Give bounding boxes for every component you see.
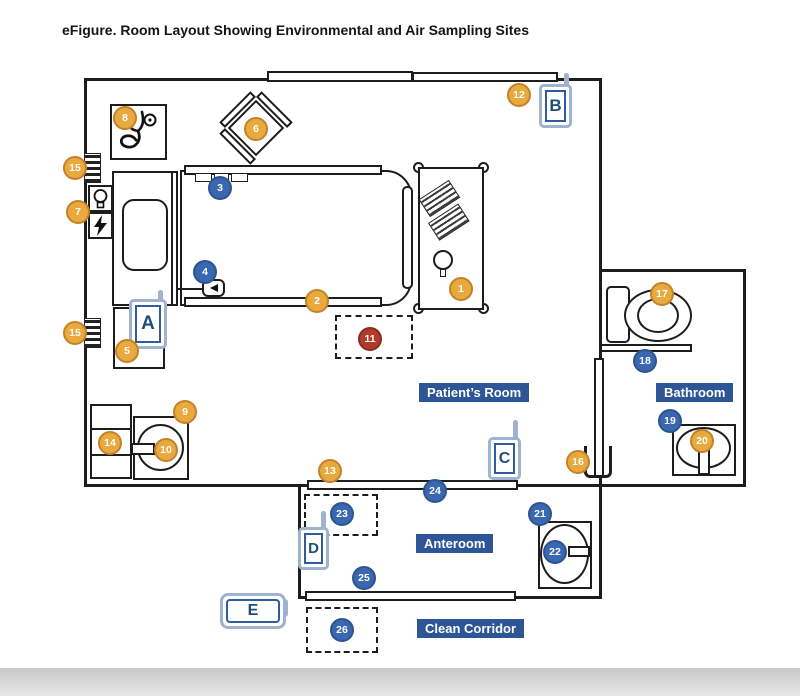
lightning-icon <box>90 214 111 237</box>
door-label-e: E <box>220 593 286 629</box>
door-c-letter: C <box>494 443 515 474</box>
sampling-site-marker-23: 23 <box>330 502 354 526</box>
door-anteroom-to-corridor <box>305 591 516 601</box>
label-clean-corridor: Clean Corridor <box>417 619 524 638</box>
door-a-letter: A <box>135 305 161 343</box>
sampling-site-marker-4: 4 <box>193 260 217 284</box>
wall-bathroom-right <box>743 269 746 487</box>
label-bathroom: Bathroom <box>656 383 733 402</box>
door-label-b: B <box>539 84 572 128</box>
sampling-site-marker-13: 13 <box>318 459 342 483</box>
label-patients-room: Patient’s Room <box>419 383 529 402</box>
door-d-letter: D <box>304 533 323 564</box>
door-b-letter: B <box>545 90 566 122</box>
sampling-site-marker-20: 20 <box>690 429 714 453</box>
sampling-site-marker-10: 10 <box>154 438 178 462</box>
mirror-icon-head <box>433 250 453 270</box>
sampling-site-marker-12: 12 <box>507 83 531 107</box>
room-sink-faucet <box>131 443 155 455</box>
sampling-site-marker-15: 15 <box>63 321 87 345</box>
sampling-site-marker-22: 22 <box>543 540 567 564</box>
efigure-room-layout: eFigure. Room Layout Showing Environment… <box>0 0 800 696</box>
sampling-site-marker-26: 26 <box>330 618 354 642</box>
mirror-icon-stem <box>440 269 446 277</box>
bed-rail-bottom <box>184 297 382 307</box>
sampling-site-marker-9: 9 <box>173 400 197 424</box>
cabinet-divider-1 <box>92 428 130 430</box>
sampling-site-marker-6: 6 <box>244 117 268 141</box>
sampling-site-marker-25: 25 <box>352 566 376 590</box>
wall-left <box>84 78 87 487</box>
sliding-door-top-panel-2 <box>412 72 558 82</box>
sampling-site-marker-7: 7 <box>66 200 90 224</box>
door-label-d: D <box>298 527 329 570</box>
sampling-site-marker-8: 8 <box>113 106 137 130</box>
bed-rail-control-3 <box>231 173 248 182</box>
wall-right-upper <box>599 78 602 362</box>
power-switch-box <box>88 212 113 239</box>
sampling-site-marker-2: 2 <box>305 289 329 313</box>
bed-pillow <box>122 199 168 271</box>
sampling-site-marker-19: 19 <box>658 409 682 433</box>
light-switch-box <box>88 185 113 212</box>
door-e-letter: E <box>226 599 280 623</box>
lightbulb-icon <box>90 187 111 210</box>
sampling-site-marker-16: 16 <box>566 450 590 474</box>
sampling-site-marker-5: 5 <box>115 339 139 363</box>
wall-bathroom-top <box>599 269 746 272</box>
figure-title: eFigure. Room Layout Showing Environment… <box>62 22 529 38</box>
door-patient-to-anteroom <box>307 480 518 490</box>
bed-headboard-line <box>171 173 173 304</box>
wall-right-lower <box>599 468 602 598</box>
sampling-site-marker-15: 15 <box>63 156 87 180</box>
anteroom-sink-handle <box>568 546 590 557</box>
sampling-site-marker-1: 1 <box>449 277 473 301</box>
sliding-door-top-panel-1 <box>267 71 413 82</box>
call-bell-icon <box>210 284 218 292</box>
sampling-site-marker-11: 11 <box>358 327 382 351</box>
sampling-site-marker-21: 21 <box>528 502 552 526</box>
label-anteroom: Anteroom <box>416 534 493 553</box>
sampling-site-marker-17: 17 <box>650 282 674 306</box>
sampling-site-marker-14: 14 <box>98 431 122 455</box>
sampling-site-marker-24: 24 <box>423 479 447 503</box>
door-label-c: C <box>488 437 521 480</box>
bed-footboard <box>402 186 413 289</box>
sampling-site-marker-18: 18 <box>633 349 657 373</box>
sampling-site-marker-3: 3 <box>208 176 232 200</box>
page-bottom-edge <box>0 668 800 696</box>
